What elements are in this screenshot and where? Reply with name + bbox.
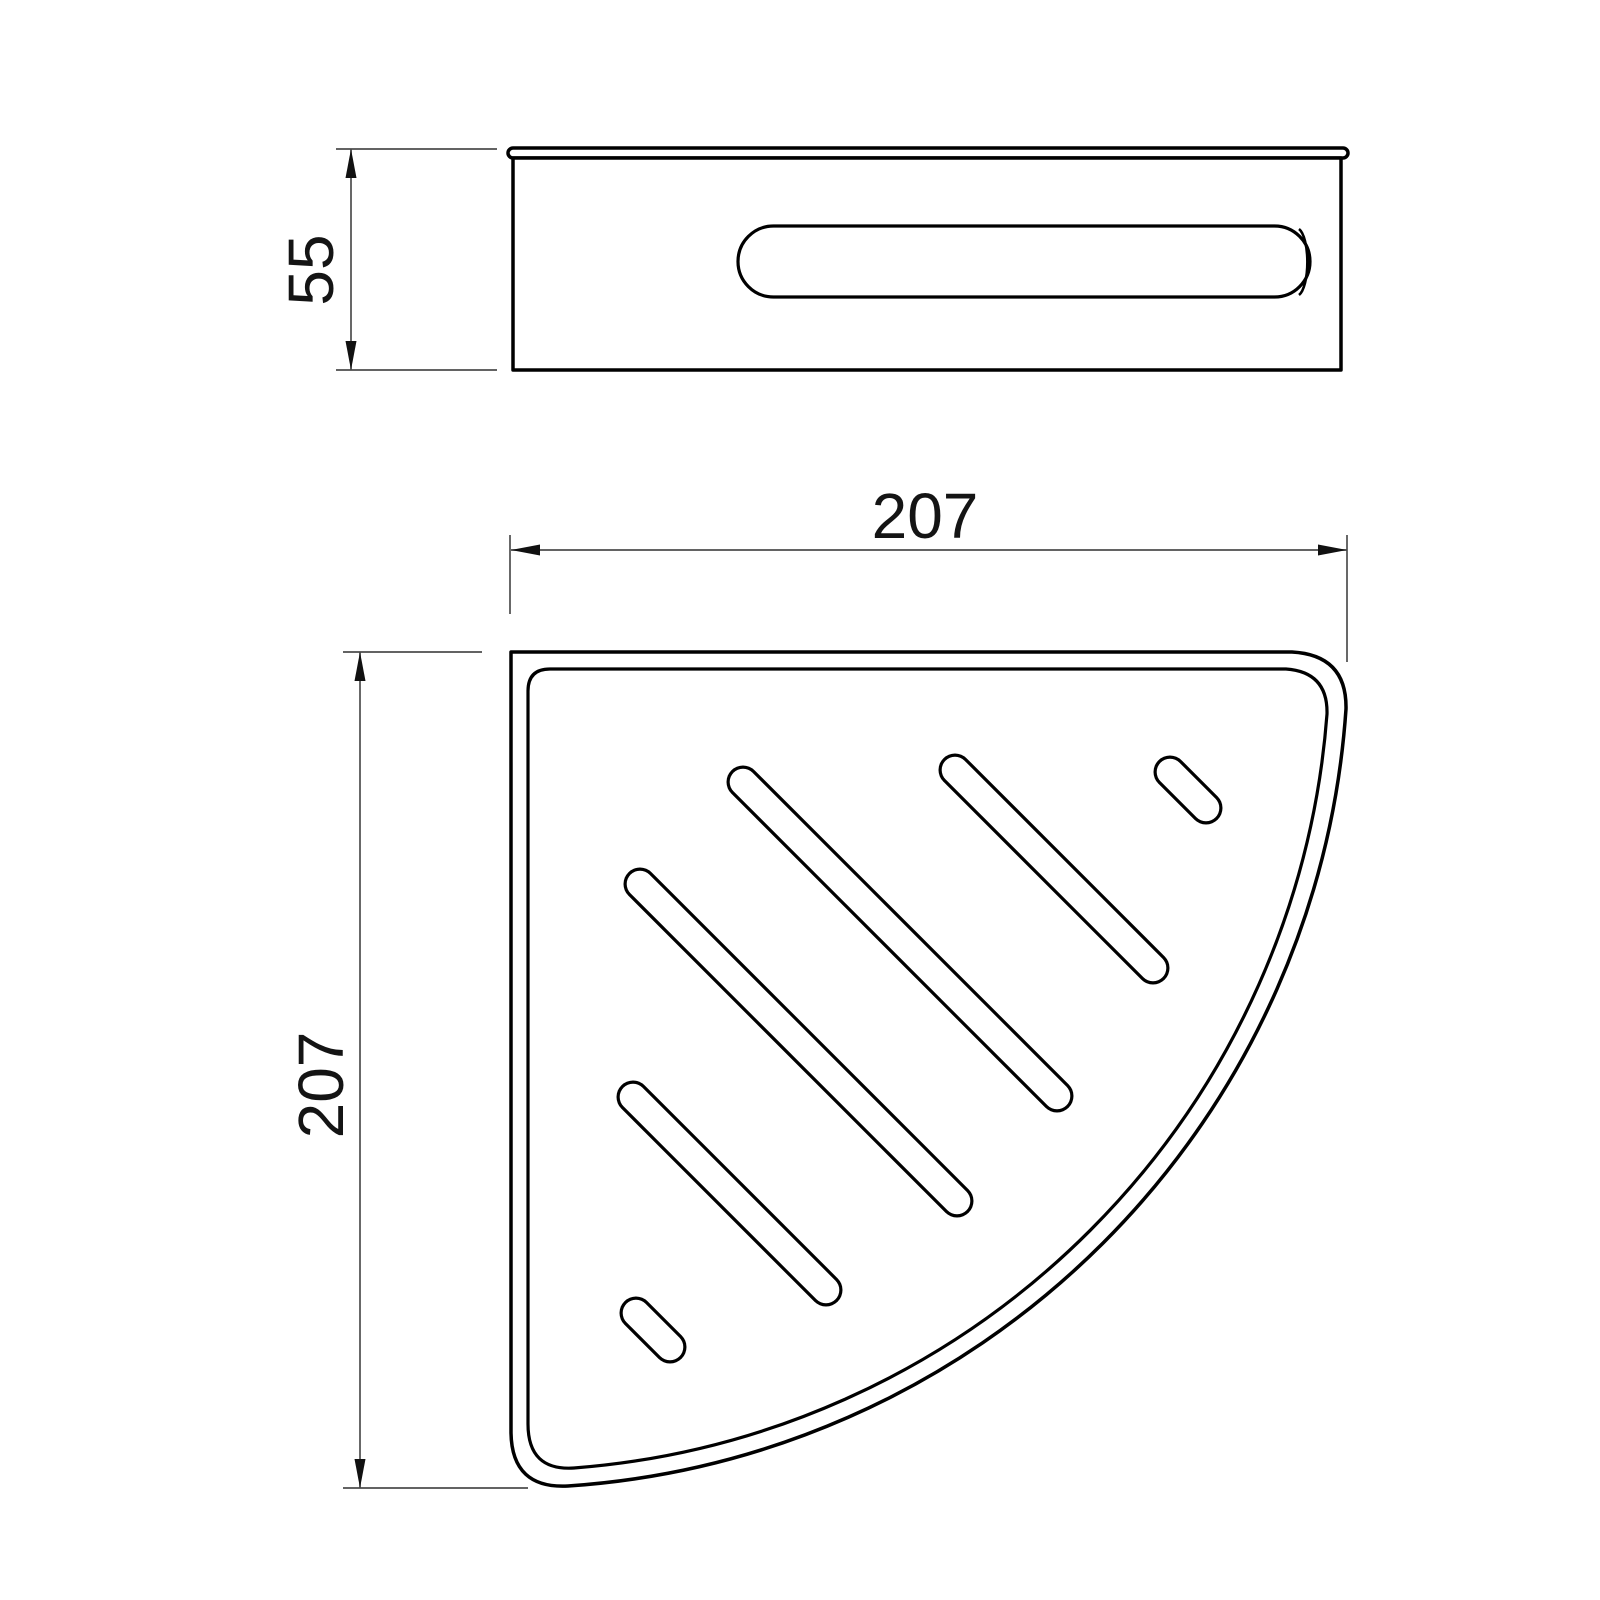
arrow-up-icon (346, 149, 357, 178)
arrow-down-icon (355, 1459, 366, 1488)
width-dimension-label: 207 (872, 480, 979, 552)
technical-drawing-sheet: 55 207 207 (0, 0, 1600, 1600)
side-view-body (513, 158, 1341, 370)
depth-dimension-label: 207 (285, 1032, 357, 1139)
side-view (508, 148, 1348, 370)
dimension-depth: 207 (285, 652, 528, 1488)
arrow-left-icon (511, 545, 540, 556)
plan-outer-rim (511, 652, 1346, 1486)
plan-view (511, 652, 1346, 1486)
dimension-width: 207 (510, 480, 1347, 662)
corner-shelf-drawing: 55 207 207 (0, 0, 1600, 1600)
arrow-down-icon (346, 341, 357, 370)
dimension-height: 55 (275, 149, 497, 370)
arrow-right-icon (1318, 545, 1347, 556)
height-dimension-label: 55 (275, 234, 347, 305)
arrow-up-icon (355, 652, 366, 681)
